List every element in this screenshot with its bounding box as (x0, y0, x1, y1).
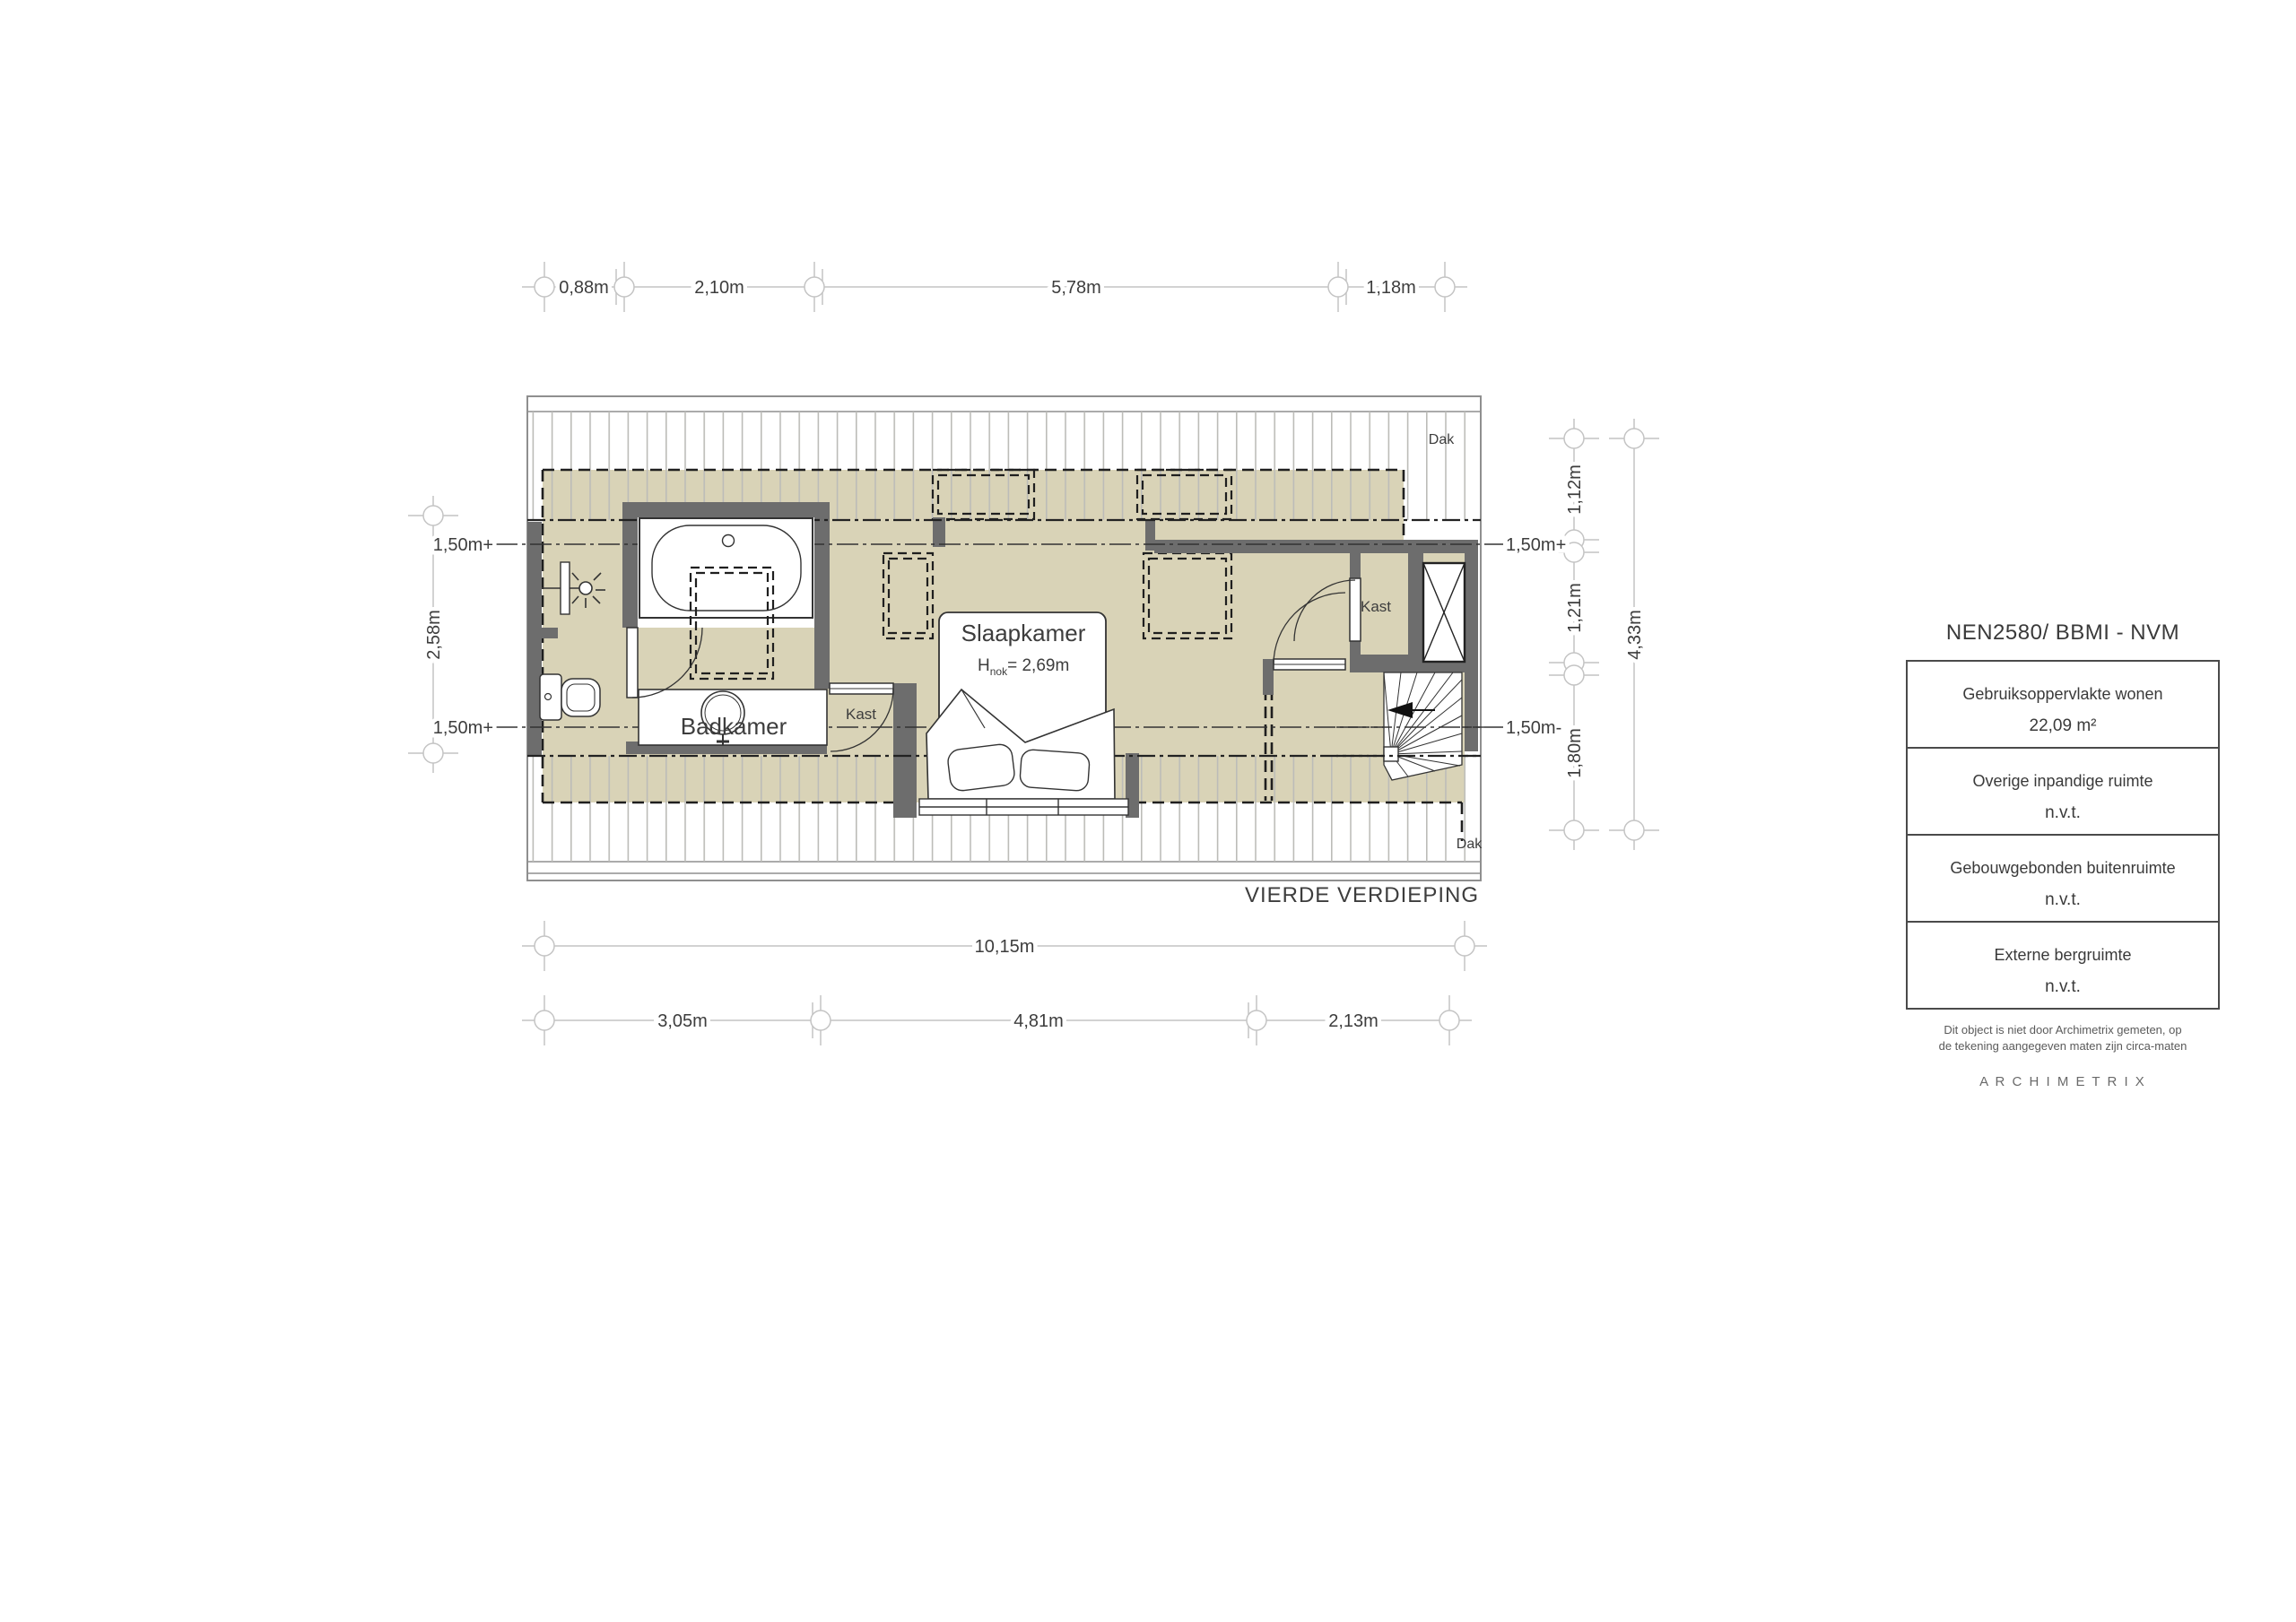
height-marker-left-bottom: 1,50m+ (433, 718, 493, 738)
legend-row-label: Gebruiksoppervlakte wonen (1908, 685, 2218, 704)
wall-exterior-left (527, 522, 542, 756)
wall-bath-right (814, 517, 830, 689)
shaft (1423, 563, 1465, 662)
legend-row: Gebruiksoppervlakte wonen 22,09 m² (1907, 661, 2219, 748)
dim-bottom-total: 10,15m (975, 937, 1035, 957)
dim-right-0: 1,12m (1565, 464, 1585, 515)
dim-left: 2,58m (424, 610, 444, 660)
floor-title: VIERDE VERDIEPING (1245, 883, 1479, 907)
legend-footnote-line2: de tekening aangegeven maten zijn circa-… (1906, 1038, 2220, 1054)
stair-newel (1384, 747, 1398, 761)
wall-corridor-top (1154, 540, 1478, 553)
wall-hall-stub (893, 683, 917, 818)
legend-row-value: n.v.t. (1908, 803, 2218, 823)
wall-exterior-right (1465, 540, 1478, 751)
height-marker-right-top: 1,50m+ (1506, 535, 1566, 555)
dim-right-total: 4,33m (1625, 610, 1645, 660)
legend-row-value: n.v.t. (1908, 890, 2218, 910)
dim-top-2: 5,78m (1051, 278, 1101, 298)
dim-top-1: 2,10m (694, 278, 744, 298)
legend-row-label: Gebouwgebonden buitenruimte (1908, 859, 2218, 878)
bed-footboard (919, 799, 1128, 815)
legend-row-value: 22,09 m² (1908, 716, 2218, 736)
floorplan-page: Badkamer Slaapkamer Hnok= 2,69m Kast Kas… (0, 0, 2296, 1622)
dim-top-3: 1,18m (1366, 278, 1416, 298)
dim-right-1: 1,21m (1565, 583, 1585, 633)
label-dak-bottom: Dak (1457, 837, 1483, 852)
legend-row: Externe bergruimte n.v.t. (1907, 922, 2219, 1009)
hnok-sub: nok (990, 665, 1008, 678)
dim-bottom-2: 2,13m (1328, 1011, 1378, 1031)
wall-bath-alcove-top (622, 502, 830, 517)
label-dak-top: Dak (1429, 432, 1455, 447)
dim-bottom-0: 3,05m (657, 1011, 708, 1031)
dim-top-0: 0,88m (559, 278, 609, 298)
room-label-badkamer: Badkamer (681, 713, 787, 740)
measurement-legend: NEN2580/ BBMI - NVM Gebruiksoppervlakte … (1906, 620, 2220, 1089)
room-label-kast-right: Kast (1361, 598, 1391, 615)
legend-footnote: Dit object is niet door Archimetrix geme… (1906, 1022, 2220, 1054)
brand-archimetrix: A R C H I M E T R I X (1906, 1074, 2220, 1089)
toilet (540, 674, 600, 720)
legend-row: Overige inpandige ruimte n.v.t. (1907, 748, 2219, 835)
hnok-value: = 2,69m (1007, 656, 1069, 675)
dim-bottom-1: 4,81m (1013, 1011, 1064, 1031)
legend-table: Gebruiksoppervlakte wonen 22,09 m² Overi… (1906, 660, 2220, 1010)
legend-row-label: Overige inpandige ruimte (1908, 772, 2218, 791)
hnok-h: H (978, 656, 990, 675)
height-marker-right-bottom: 1,50m- (1506, 718, 1561, 738)
legend-footnote-line1: Dit object is niet door Archimetrix geme… (1906, 1022, 2220, 1038)
room-label-slaapkamer: Slaapkamer (961, 620, 1086, 646)
legend-title: NEN2580/ BBMI - NVM (1906, 620, 2220, 646)
legend-row-value: n.v.t. (1908, 977, 2218, 997)
height-marker-left-top: 1,50m+ (433, 535, 493, 555)
legend-row-label: Externe bergruimte (1908, 946, 2218, 965)
dim-right-2: 1,80m (1565, 728, 1585, 778)
room-label-kast-hall: Kast (846, 706, 876, 723)
legend-row: Gebouwgebonden buitenruimte n.v.t. (1907, 835, 2219, 922)
